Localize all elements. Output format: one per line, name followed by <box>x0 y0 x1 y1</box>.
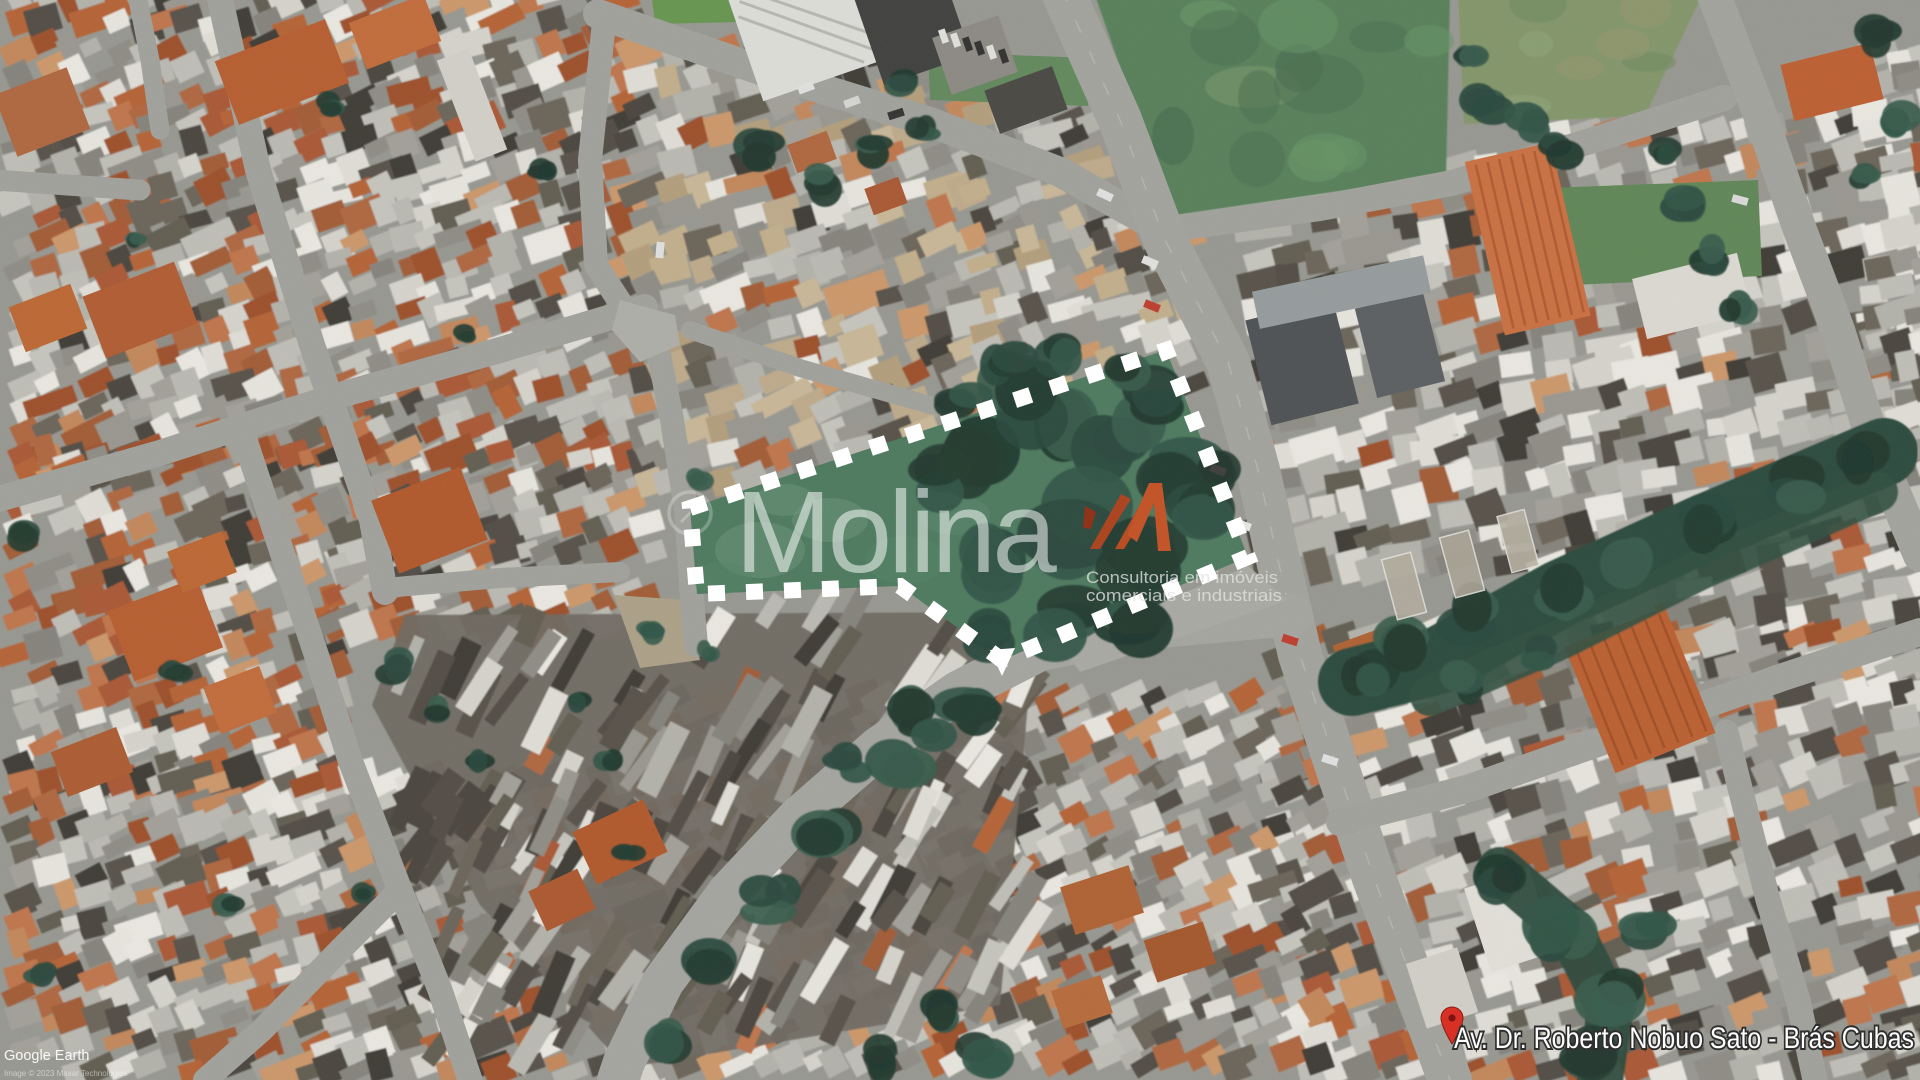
svg-text:comerciais e industriais: comerciais e industriais <box>1086 586 1282 605</box>
svg-text:Google Earth: Google Earth <box>4 1048 89 1064</box>
svg-text:Consultoria em imóveis: Consultoria em imóveis <box>1086 568 1278 587</box>
svg-text:Av. Dr. Roberto Nobuo Sato - B: Av. Dr. Roberto Nobuo Sato - Brás Cubas <box>1454 1022 1914 1055</box>
svg-text:Molina: Molina <box>735 467 1057 597</box>
svg-text:Image © 2023 Maxar Technologie: Image © 2023 Maxar Technologies <box>4 1069 128 1078</box>
